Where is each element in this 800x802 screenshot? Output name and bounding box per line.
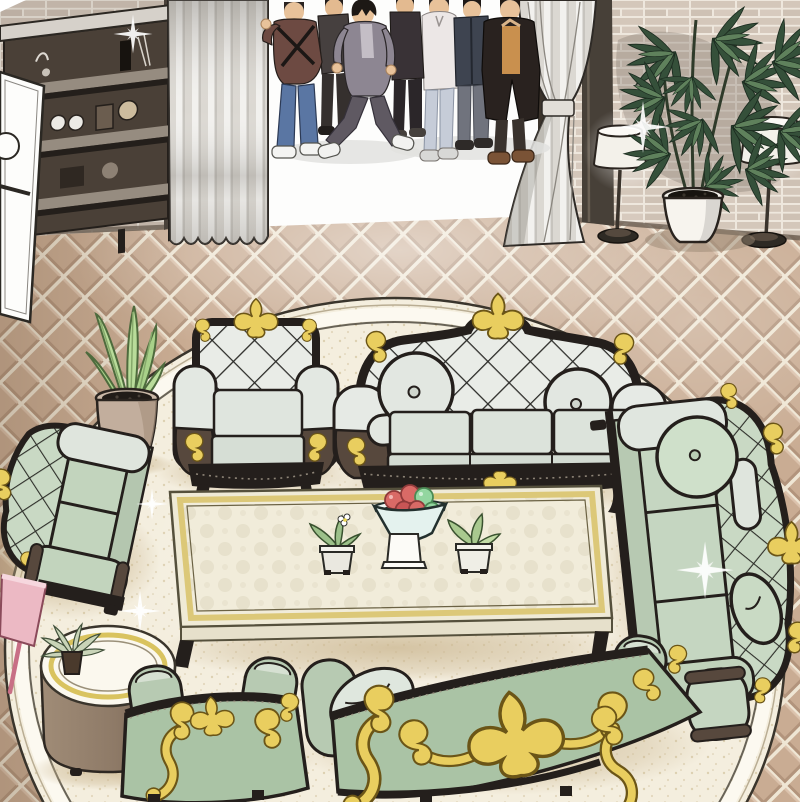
living-room-illustration (0, 0, 800, 802)
mini-plant-pot (62, 652, 82, 674)
shelf-bottle (120, 40, 131, 71)
webtoon-panel (0, 0, 800, 802)
plant-pot (458, 550, 490, 572)
bowl-pedestal (387, 534, 421, 564)
visitor-group (261, 0, 550, 164)
seat-cushion (390, 412, 470, 456)
seat-cushion (472, 410, 552, 454)
armchair-seat (214, 390, 302, 438)
armchair-top (174, 299, 338, 512)
plant-pot (322, 552, 352, 573)
door-knob (0, 133, 19, 159)
curtain-tie-band (542, 100, 574, 116)
curtain-left (168, 0, 268, 244)
shelf-box (96, 104, 113, 130)
